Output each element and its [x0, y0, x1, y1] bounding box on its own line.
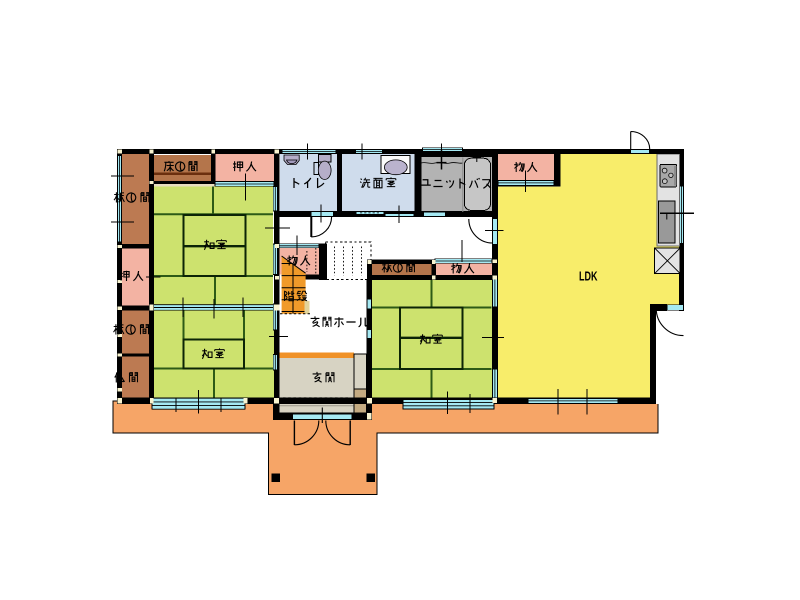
svg-text:LDK: LDK — [579, 269, 598, 284]
